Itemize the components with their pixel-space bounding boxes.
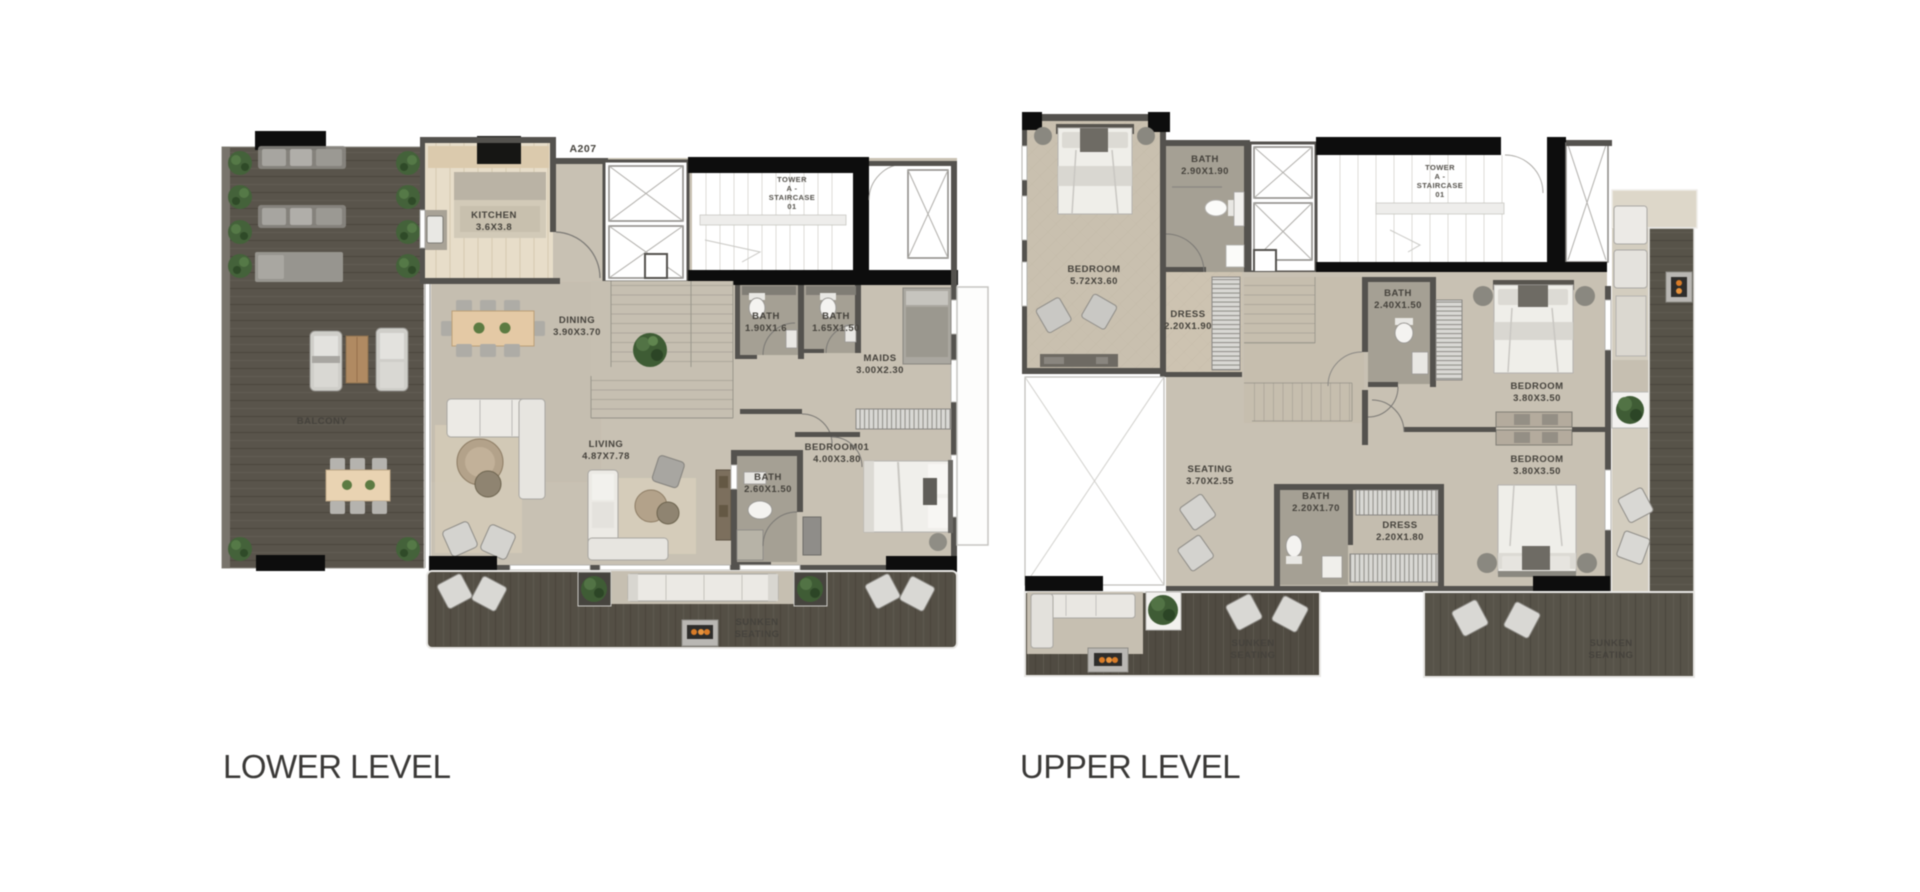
svg-text:BEDROOM: BEDROOM (1510, 454, 1563, 465)
svg-text:BALCONY: BALCONY (297, 416, 348, 427)
svg-text:SEATING: SEATING (1588, 650, 1633, 661)
svg-text:BATH: BATH (1302, 491, 1330, 502)
svg-text:2.20X1.80: 2.20X1.80 (1376, 532, 1424, 543)
svg-text:3.00X2.30: 3.00X2.30 (856, 365, 904, 376)
svg-text:LIVING: LIVING (589, 439, 624, 450)
svg-text:LOWER LEVEL: LOWER LEVEL (223, 748, 451, 785)
svg-text:BATH: BATH (822, 311, 850, 322)
svg-text:01: 01 (787, 202, 796, 211)
svg-text:3.80X3.50: 3.80X3.50 (1513, 393, 1561, 404)
svg-text:SEATING: SEATING (734, 629, 779, 640)
svg-text:TOWER: TOWER (1425, 163, 1455, 172)
svg-text:BATH: BATH (752, 311, 780, 322)
svg-text:2.90X1.90: 2.90X1.90 (1181, 166, 1229, 177)
svg-text:SEATING: SEATING (1230, 650, 1275, 661)
svg-text:01: 01 (1435, 190, 1444, 199)
svg-text:1.90X1.6: 1.90X1.6 (745, 323, 787, 334)
svg-text:A -: A - (787, 184, 798, 193)
svg-text:5.72X3.60: 5.72X3.60 (1070, 276, 1118, 287)
svg-text:3.80X3.50: 3.80X3.50 (1513, 466, 1561, 477)
svg-text:2.20X1.90: 2.20X1.90 (1164, 321, 1212, 332)
svg-text:BATH: BATH (754, 472, 782, 483)
svg-text:BATH: BATH (1191, 154, 1219, 165)
svg-text:1.65X1.50: 1.65X1.50 (812, 323, 860, 334)
svg-text:MAIDS: MAIDS (863, 353, 896, 364)
svg-text:2.20X1.70: 2.20X1.70 (1292, 503, 1340, 514)
svg-text:4.00X3.80: 4.00X3.80 (813, 454, 861, 465)
svg-text:DRESS: DRESS (1170, 309, 1205, 320)
svg-text:SUNKEN: SUNKEN (735, 617, 778, 628)
svg-text:STAIRCASE: STAIRCASE (1417, 181, 1463, 190)
svg-text:4.87X7.78: 4.87X7.78 (582, 451, 630, 462)
svg-text:2.40X1.50: 2.40X1.50 (1374, 300, 1422, 311)
svg-text:A207: A207 (569, 143, 596, 155)
svg-text:TOWER: TOWER (777, 175, 807, 184)
svg-text:BEDROOM: BEDROOM (1510, 381, 1563, 392)
svg-text:2.60X1.50: 2.60X1.50 (744, 484, 792, 495)
svg-text:SUNKEN: SUNKEN (1589, 638, 1632, 649)
svg-text:3.90X3.70: 3.90X3.70 (553, 327, 601, 338)
svg-text:SEATING: SEATING (1187, 464, 1232, 475)
svg-text:DINING: DINING (559, 315, 595, 326)
svg-text:3.70X2.55: 3.70X2.55 (1186, 476, 1234, 487)
svg-text:BEDROOM01: BEDROOM01 (805, 442, 870, 453)
svg-text:3.6X3.8: 3.6X3.8 (476, 222, 512, 233)
svg-text:BATH: BATH (1384, 288, 1412, 299)
svg-text:A -: A - (1435, 172, 1446, 181)
svg-text:DRESS: DRESS (1382, 520, 1417, 531)
svg-text:SUNKEN: SUNKEN (1231, 638, 1274, 649)
svg-text:KITCHEN: KITCHEN (471, 210, 517, 221)
svg-text:UPPER LEVEL: UPPER LEVEL (1020, 748, 1240, 785)
svg-text:STAIRCASE: STAIRCASE (769, 193, 815, 202)
svg-text:BEDROOM: BEDROOM (1067, 264, 1120, 275)
